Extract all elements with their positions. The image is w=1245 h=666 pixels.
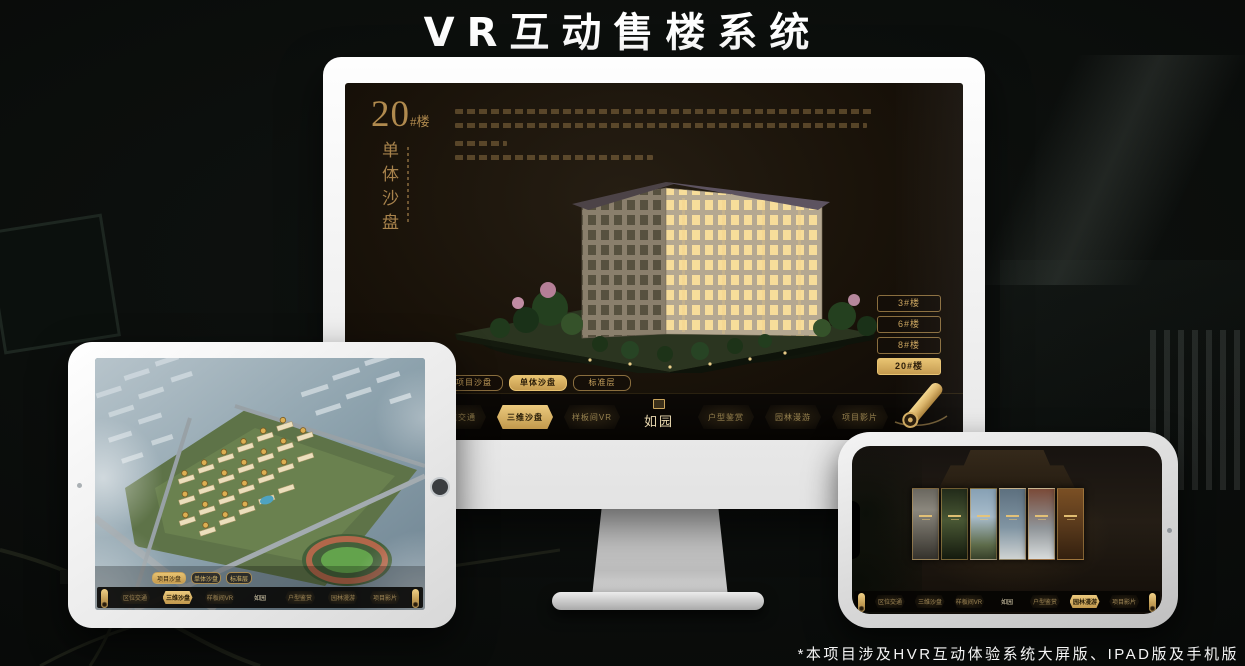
nav-item-label: 三维沙盘 xyxy=(507,412,543,423)
building-3d-render[interactable] xyxy=(430,138,890,373)
ruyuan-logo[interactable]: 如园 xyxy=(994,593,1020,611)
building-heading: 20#楼 xyxy=(371,93,430,136)
nav-item-floorplan[interactable]: 户型鉴赏 xyxy=(698,405,754,429)
ipad-device: 项目沙盘 单体沙盘 标准层 区位交通 三维沙盘 样板间VR 如园 户型鉴赏 园林… xyxy=(68,342,456,628)
ruyuan-logo-label: 如园 xyxy=(644,414,674,429)
ruyuan-logo[interactable]: 如园 xyxy=(639,399,679,430)
nav-item-project-film[interactable]: 项目影片 xyxy=(832,405,888,429)
scene-card-interior-warm[interactable] xyxy=(1057,488,1084,560)
heading-english-decoration xyxy=(407,147,409,225)
nav-item-label: 园林漫游 xyxy=(775,412,811,423)
nav-item-label: 样板间VR xyxy=(956,597,982,606)
building-number: 20 xyxy=(371,94,410,135)
scene-card-caption xyxy=(948,515,961,517)
scroll-icon[interactable] xyxy=(858,593,865,610)
ipad-subtab-standard-floor[interactable]: 标准层 xyxy=(226,572,252,584)
nav-item-label: 区位交通 xyxy=(878,597,902,606)
background-aerial-band xyxy=(985,55,1245,285)
scroll-icon[interactable] xyxy=(101,589,108,606)
subtab-label: 标准层 xyxy=(230,574,248,583)
page-title: VR互动售楼系统 xyxy=(0,0,1245,58)
scroll-icon[interactable] xyxy=(412,589,419,606)
nav-item-label: 区位交通 xyxy=(123,593,147,602)
ipad-home-button xyxy=(430,477,450,497)
nav-item-label: 户型鉴赏 xyxy=(708,412,744,423)
nav-item-label: 项目影片 xyxy=(373,593,397,602)
intro-text-line xyxy=(455,109,875,114)
scene-card-caption xyxy=(1067,519,1075,520)
nav-item-label: 三维沙盘 xyxy=(166,593,190,602)
screen-glare xyxy=(893,83,963,440)
scene-card-exterior-day[interactable] xyxy=(970,488,997,560)
scene-card-building[interactable] xyxy=(999,488,1026,560)
nav-item-label: 户型鉴赏 xyxy=(1033,597,1057,606)
scene-card-caption xyxy=(1006,515,1019,517)
nav-item-label: 样板间VR xyxy=(207,593,233,602)
phone-nav-3d-sandbox[interactable]: 三维沙盘 xyxy=(915,595,945,608)
phone-bottom-nav: 区位交通 三维沙盘 样板间VR 如园 户型鉴赏 园林漫游 项目影片 xyxy=(854,591,1160,612)
ipad-subtabs: 项目沙盘 单体沙盘 标准层 xyxy=(152,572,252,584)
nav-item-garden-roam[interactable]: 园林漫游 xyxy=(765,405,821,429)
scroll-icon[interactable] xyxy=(1149,593,1156,610)
promo-page: VR互动售楼系统 20#楼 单体沙盘 xyxy=(0,0,1245,666)
ipad-bottom-nav: 区位交通 三维沙盘 样板间VR 如园 户型鉴赏 园林漫游 项目影片 xyxy=(97,587,423,608)
monitor-stand-neck xyxy=(592,509,728,597)
ruyuan-logo-label: 如园 xyxy=(254,593,266,602)
nav-item-label: 项目影片 xyxy=(842,412,878,423)
ipad-nav-floorplan[interactable]: 户型鉴赏 xyxy=(285,591,315,604)
subtab-label: 项目沙盘 xyxy=(157,574,181,583)
subtab-standard-floor[interactable]: 标准层 xyxy=(573,375,631,391)
scene-card-interior-sketch[interactable] xyxy=(912,488,939,560)
phone-screen: 区位交通 三维沙盘 样板间VR 如园 户型鉴赏 园林漫游 项目影片 xyxy=(852,446,1162,614)
phone-nav-project-film[interactable]: 项目影片 xyxy=(1109,595,1139,608)
scene-card-caption xyxy=(1038,519,1046,520)
nav-item-label: 园林漫游 xyxy=(1073,597,1097,606)
ipad-subtab-project-sandbox-active[interactable]: 项目沙盘 xyxy=(152,572,186,584)
scene-card-autumn-court[interactable] xyxy=(1028,488,1055,560)
ipad-nav-project-film[interactable]: 项目影片 xyxy=(370,591,400,604)
nav-item-3d-sandbox-active[interactable]: 三维沙盘 xyxy=(497,405,553,429)
scene-card-caption xyxy=(980,519,988,520)
intro-text-line xyxy=(455,123,867,128)
phone-device: 区位交通 三维沙盘 样板间VR 如园 户型鉴赏 园林漫游 项目影片 xyxy=(838,432,1178,628)
nav-item-label: 园林漫游 xyxy=(331,593,355,602)
ipad-nav-3d-sandbox-active[interactable]: 三维沙盘 xyxy=(163,591,193,604)
ipad-nav-location-traffic[interactable]: 区位交通 xyxy=(120,591,150,604)
ruyuan-logo-label: 如园 xyxy=(1001,597,1013,606)
ruyuan-seal-icon xyxy=(653,399,665,409)
nav-item-label: 样板间VR xyxy=(572,412,612,423)
scene-card-caption xyxy=(977,515,990,517)
phone-camera-icon xyxy=(1167,528,1172,533)
nav-item-label: 项目影片 xyxy=(1112,597,1136,606)
page-heading-vertical: 单体沙盘 xyxy=(376,141,401,237)
background-sign-plaque xyxy=(0,214,121,355)
nav-item-label: 三维沙盘 xyxy=(918,597,942,606)
subtab-single-sandbox-active[interactable]: 单体沙盘 xyxy=(509,375,567,391)
scene-card-caption xyxy=(1064,515,1077,517)
phone-nav-model-room-vr[interactable]: 样板间VR xyxy=(954,595,984,608)
nav-item-label: 户型鉴赏 xyxy=(288,593,312,602)
aerial-masterplan-render[interactable] xyxy=(95,358,425,610)
footnote-text: *本项目涉及HVR互动体验系统大屏版、IPAD版及手机版 xyxy=(798,643,1239,664)
phone-nav-garden-roam-active[interactable]: 园林漫游 xyxy=(1070,595,1100,608)
ipad-subtab-single-sandbox[interactable]: 单体沙盘 xyxy=(191,572,221,584)
ipad-camera-icon xyxy=(77,483,82,488)
scene-card-caption xyxy=(919,515,932,517)
phone-nav-floorplan[interactable]: 户型鉴赏 xyxy=(1030,595,1060,608)
scene-card-garden[interactable] xyxy=(941,488,968,560)
monitor-stand-base xyxy=(552,592,764,610)
scene-card-caption xyxy=(1009,519,1017,520)
scene-card-caption xyxy=(951,519,959,520)
phone-notch xyxy=(852,501,860,559)
phone-nav-location-traffic[interactable]: 区位交通 xyxy=(875,595,905,608)
nav-item-model-room-vr[interactable]: 样板间VR xyxy=(564,405,620,429)
ipad-nav-model-room-vr[interactable]: 样板间VR xyxy=(205,591,235,604)
ipad-nav-garden-roam[interactable]: 园林漫游 xyxy=(328,591,358,604)
scene-card-caption xyxy=(922,519,930,520)
ipad-screen: 项目沙盘 单体沙盘 标准层 区位交通 三维沙盘 样板间VR 如园 户型鉴赏 园林… xyxy=(95,358,425,610)
subtab-label: 单体沙盘 xyxy=(194,574,218,583)
ruyuan-logo[interactable]: 如园 xyxy=(247,589,273,607)
building-number-suffix: #楼 xyxy=(410,114,430,129)
scene-card-caption xyxy=(1035,515,1048,517)
